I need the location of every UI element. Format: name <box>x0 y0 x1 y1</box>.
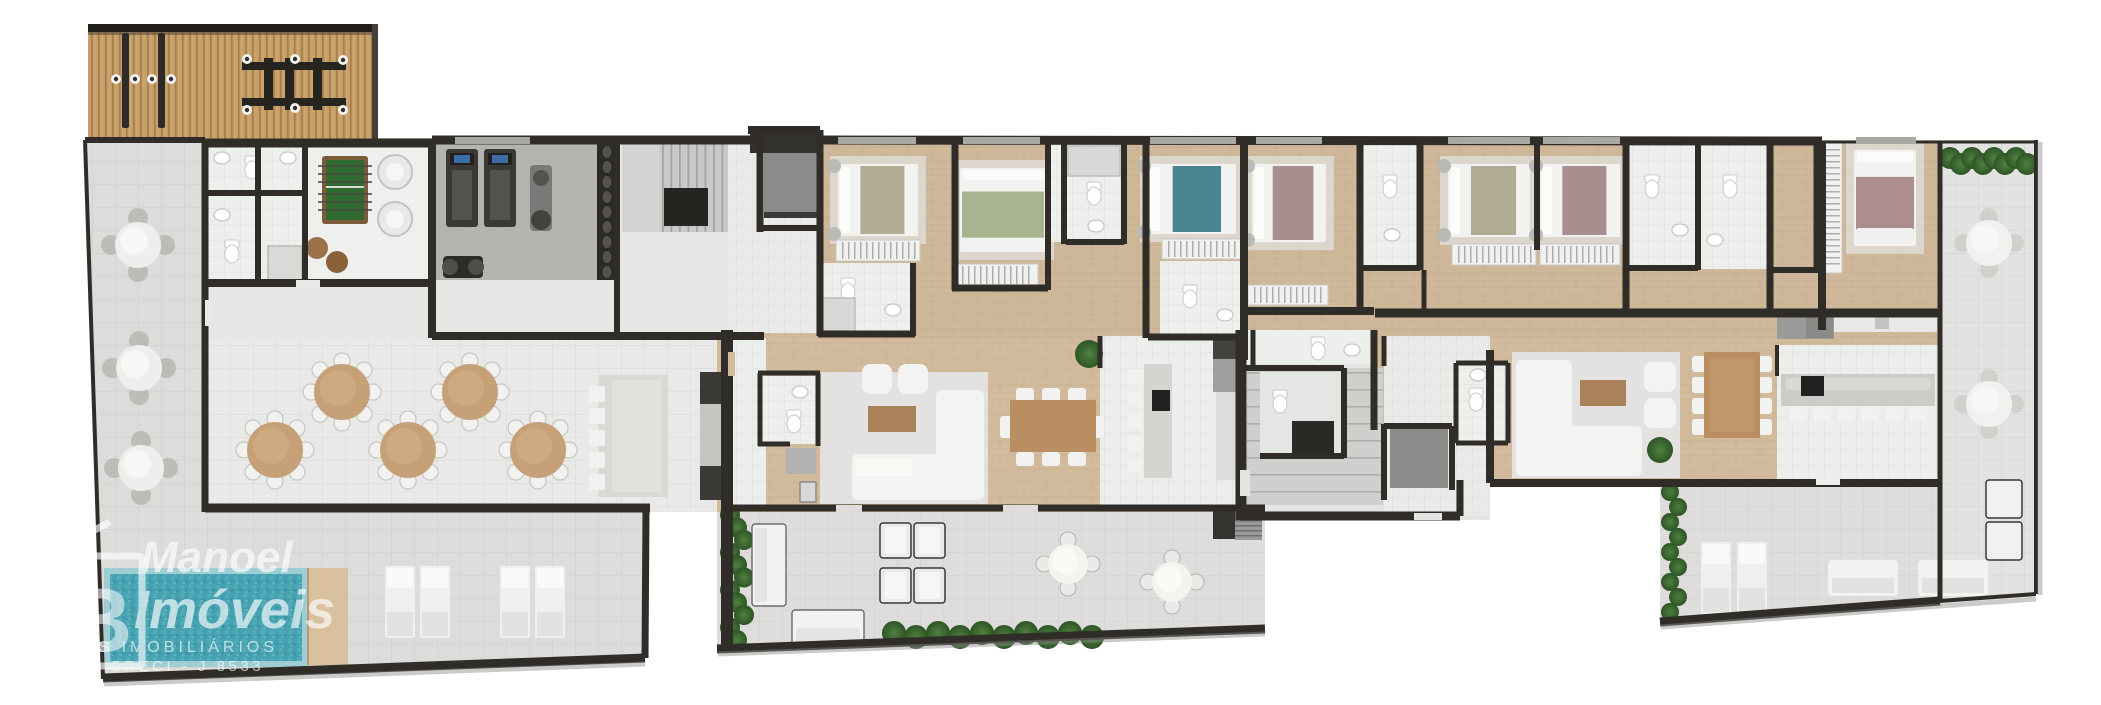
svg-text:B: B <box>66 570 132 672</box>
svg-text:Manoel: Manoel <box>141 533 293 582</box>
svg-text:CRECI - J 8533: CRECI - J 8533 <box>110 658 264 675</box>
svg-text:Imóveis: Imóveis <box>134 580 335 640</box>
